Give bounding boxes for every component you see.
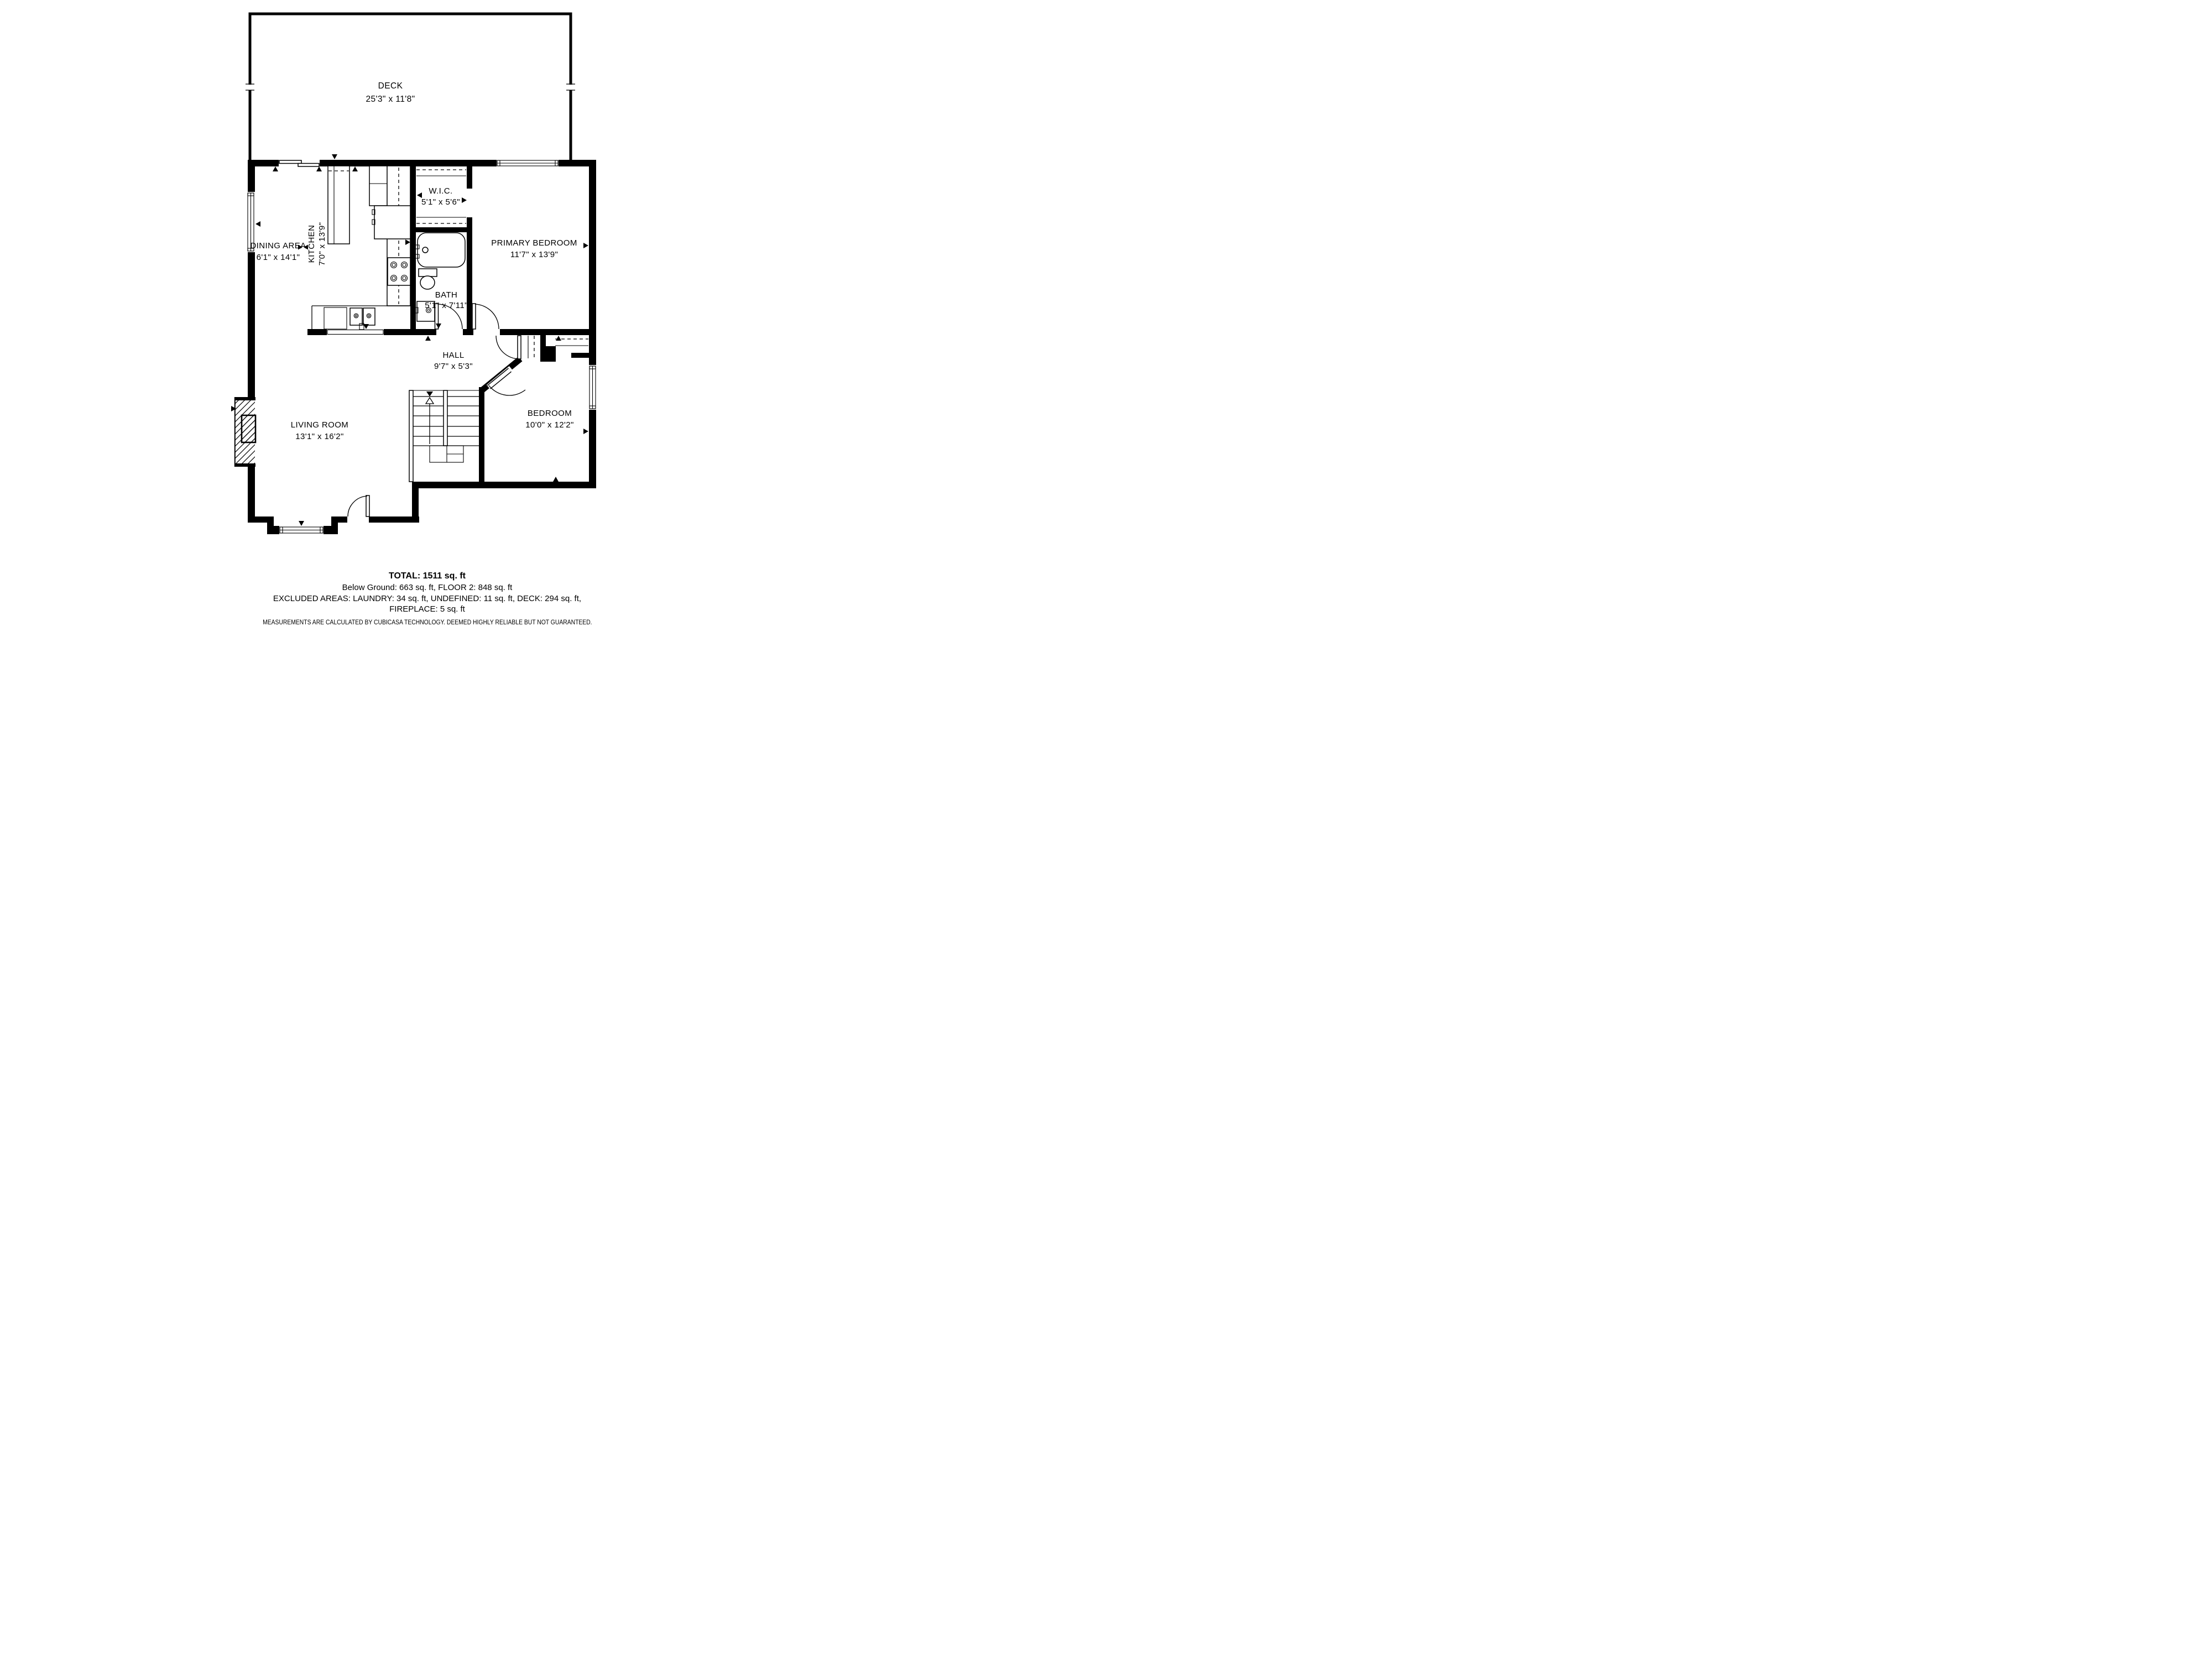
wic-label: W.I.C. bbox=[429, 186, 452, 196]
stove-icon bbox=[388, 258, 410, 285]
marker-down-icon bbox=[299, 521, 304, 526]
refrigerator-icon bbox=[372, 206, 410, 239]
marker-up-icon bbox=[316, 166, 322, 171]
marker-up-icon bbox=[425, 336, 431, 341]
area-summary: TOTAL: 1511 sq. ft Below Ground: 663 sq.… bbox=[0, 571, 854, 626]
kitchen-label: KITCHEN bbox=[307, 225, 316, 263]
marker-up-icon bbox=[556, 336, 561, 341]
toilet-icon bbox=[419, 269, 437, 289]
dining-area-label: DINING AREA bbox=[250, 241, 306, 251]
stairs-up-arrow-icon bbox=[426, 398, 434, 404]
front-door bbox=[347, 495, 369, 523]
kitchen-dims: 7'0" x 13'9" bbox=[317, 222, 327, 266]
marker-right-icon bbox=[462, 197, 467, 203]
excluded-areas: EXCLUDED AREAS: LAUNDRY: 34 sq. ft, UNDE… bbox=[0, 593, 854, 604]
wic-shelves bbox=[416, 170, 466, 223]
hall-dims: 9'7" x 5'3" bbox=[434, 362, 473, 371]
bedroom-door bbox=[489, 369, 525, 395]
deck-label: DECK bbox=[378, 81, 403, 91]
window-primary-top bbox=[497, 159, 559, 167]
bedroom-dims: 10'0" x 12'2" bbox=[525, 420, 573, 430]
marker-left-icon bbox=[255, 221, 260, 227]
floorplan-page: DECK 25'3" x 11'8" DINING AREA 6'1" x 14… bbox=[0, 0, 854, 644]
fireplace-icon bbox=[234, 397, 255, 467]
living-room-label: LIVING ROOM bbox=[291, 420, 348, 430]
dining-area-dims: 6'1" x 14'1" bbox=[257, 253, 300, 262]
marker-right-icon bbox=[583, 429, 588, 434]
marker-up-icon bbox=[352, 166, 358, 171]
bathtub-icon bbox=[415, 233, 465, 267]
living-room-dims: 13'1" x 16'2" bbox=[295, 432, 343, 441]
bay-window bbox=[267, 517, 338, 534]
wic-door-opening bbox=[467, 189, 472, 217]
window-bedroom-right bbox=[588, 365, 597, 410]
hall-label: HALL bbox=[442, 351, 464, 360]
laundry-closet-door bbox=[496, 336, 521, 359]
deck-dims: 25'3" x 11'8" bbox=[366, 95, 415, 104]
sliding-door bbox=[279, 159, 320, 167]
floor-areas: Below Ground: 663 sq. ft, FLOOR 2: 848 s… bbox=[0, 582, 854, 593]
excluded-areas-2: FIREPLACE: 5 sq. ft bbox=[0, 604, 854, 614]
bath-dims: 5'1" x 7'11" bbox=[425, 301, 468, 310]
marker-up-icon bbox=[553, 477, 559, 482]
primary-bedroom-dims: 11'7" x 13'9" bbox=[510, 250, 558, 259]
dishwasher-icon bbox=[324, 307, 347, 329]
stairs bbox=[409, 390, 479, 482]
laundry-closet bbox=[528, 336, 534, 358]
total-area: TOTAL: 1511 sq. ft bbox=[0, 571, 854, 582]
pantry-cabinet bbox=[328, 166, 349, 244]
floorplan-drawing: DECK 25'3" x 11'8" DINING AREA 6'1" x 14… bbox=[0, 0, 854, 644]
deck-outline bbox=[246, 14, 575, 161]
primary-bedroom-label: PRIMARY BEDROOM bbox=[491, 238, 577, 248]
kitchen-pass-through bbox=[327, 329, 384, 335]
wic-dims: 5'1" x 5'6" bbox=[421, 197, 460, 207]
marker-up-icon bbox=[273, 166, 278, 171]
stairs-down-marker-icon bbox=[426, 392, 433, 397]
marker-right-icon bbox=[583, 243, 588, 248]
bath-label: BATH bbox=[435, 290, 458, 300]
disclaimer: MEASUREMENTS ARE CALCULATED BY CUBICASA … bbox=[0, 619, 854, 626]
marker-down-icon bbox=[332, 154, 337, 159]
kitchen-sink-icon bbox=[350, 308, 375, 330]
bedroom-label: BEDROOM bbox=[528, 409, 572, 418]
primary-bedroom-door bbox=[472, 304, 500, 335]
